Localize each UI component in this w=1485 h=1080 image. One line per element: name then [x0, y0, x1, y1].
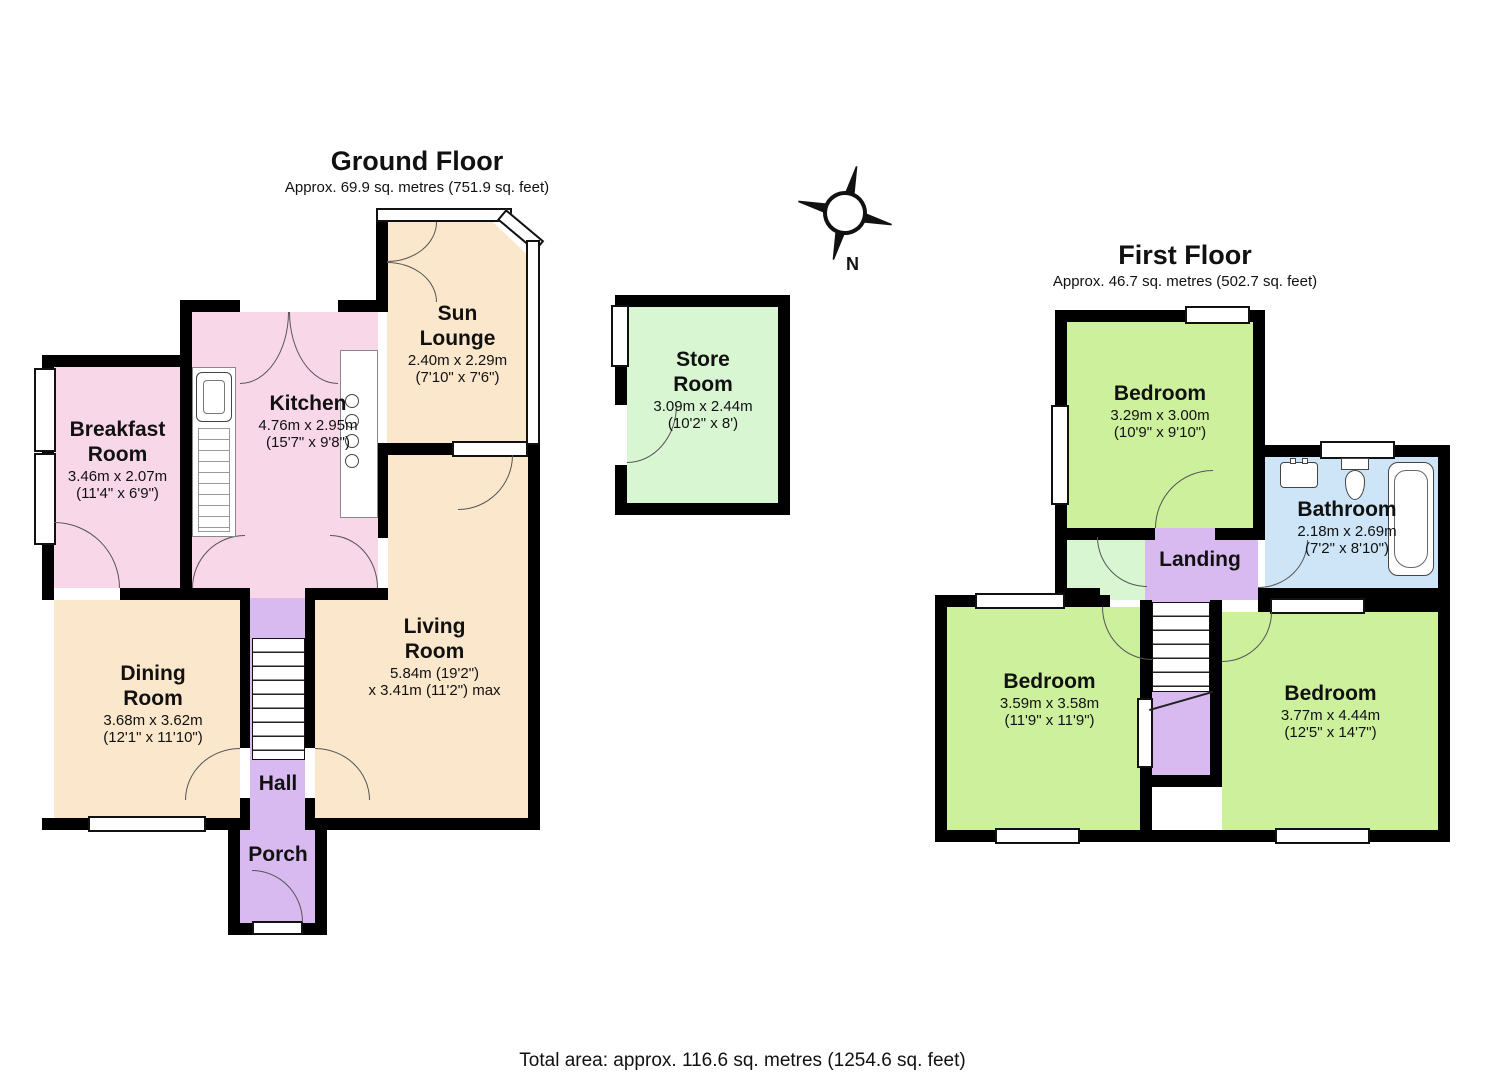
- room-name: Bedroom: [972, 670, 1127, 695]
- label-kitchen: Kitchen 4.76m x 2.95m (15'7" x 9'8"): [240, 392, 376, 452]
- room-dims: (10'2" x 8'): [638, 415, 768, 433]
- label-living: Living Room 5.84m (19'2") x 3.41m (11'2"…: [352, 615, 517, 700]
- wall: [240, 798, 250, 830]
- compass-icon: [795, 163, 895, 263]
- wall: [42, 588, 54, 600]
- room-dims: (11'4" x 6'9"): [50, 485, 185, 503]
- wall: [1265, 445, 1320, 457]
- wall: [1140, 787, 1152, 830]
- room-name: Sun Lounge: [415, 302, 500, 352]
- label-store: Store Room 3.09m x 2.44m (10'2" x 8'): [638, 348, 768, 433]
- wall: [1215, 528, 1253, 540]
- window-sun-lounge-top: [376, 208, 512, 222]
- wall: [180, 300, 240, 312]
- room-dims: 3.77m x 4.44m: [1248, 707, 1413, 725]
- label-porch: Porch: [236, 843, 320, 868]
- bathroom-sink: [1280, 462, 1318, 488]
- wall: [1438, 445, 1450, 842]
- label-bedroom-top: Bedroom 3.29m x 3.00m (10'9" x 9'10"): [1085, 382, 1235, 442]
- wall: [615, 295, 790, 307]
- compass-north-label: N: [846, 254, 859, 275]
- window: [995, 828, 1080, 844]
- floorplan-page: Ground Floor Approx. 69.9 sq. metres (75…: [0, 0, 1485, 1080]
- room-dims: 5.84m (19'2"): [352, 665, 517, 683]
- room-landing-doorway: [1155, 528, 1215, 540]
- room-dims: (10'9" x 9'10"): [1085, 424, 1235, 442]
- window-sun-lounge-right: [526, 240, 540, 445]
- wall: [42, 818, 88, 830]
- window: [88, 816, 206, 832]
- window: [1051, 405, 1069, 505]
- room-dims: 3.29m x 3.00m: [1085, 407, 1235, 425]
- stairs-first-floor: [1152, 602, 1210, 692]
- wall: [305, 598, 315, 748]
- room-dims: (7'10" x 7'6"): [395, 369, 520, 387]
- kitchen-sink-bowl: [203, 380, 225, 414]
- wall: [305, 798, 315, 830]
- stairs-ground-floor: [252, 638, 305, 760]
- wall: [228, 923, 252, 935]
- toilet-cistern: [1341, 458, 1369, 470]
- room-name: Store Room: [661, 348, 746, 398]
- wall: [615, 503, 790, 515]
- wall: [315, 818, 540, 830]
- room-dims: (15'7" x 9'8"): [240, 434, 376, 452]
- label-bedroom-right: Bedroom 3.77m x 4.44m (12'5" x 14'7"): [1248, 682, 1413, 742]
- first-floor-title: First Floor: [1035, 240, 1335, 271]
- window: [975, 593, 1065, 609]
- wall: [1055, 310, 1067, 405]
- wall: [376, 443, 452, 455]
- room-dims: (12'5" x 14'7"): [1248, 724, 1413, 742]
- label-landing: Landing: [1146, 548, 1254, 573]
- wall: [305, 588, 388, 600]
- wall: [1258, 600, 1270, 612]
- window-bedroom-right-top: [1270, 598, 1365, 614]
- room-name: Living Room: [395, 615, 475, 665]
- room-dims: 3.09m x 2.44m: [638, 398, 768, 416]
- wall: [778, 295, 790, 515]
- wall: [240, 598, 250, 748]
- label-bathroom: Bathroom 2.18m x 2.69m (7'2" x 8'10"): [1272, 498, 1422, 558]
- first-floor-subtitle: Approx. 46.7 sq. metres (502.7 sq. feet): [1035, 273, 1335, 290]
- bathroom-sink-tap: [1290, 458, 1296, 464]
- room-dims: (12'1" x 11'10"): [78, 729, 228, 747]
- wall: [378, 443, 388, 538]
- room-name: Breakfast Room: [62, 418, 174, 468]
- room-name: Porch: [236, 843, 320, 868]
- wall: [1365, 600, 1450, 612]
- hob-ring-icon: [345, 454, 359, 468]
- wall: [1210, 600, 1222, 787]
- wall: [1055, 505, 1067, 600]
- wall: [42, 355, 192, 367]
- window: [1185, 306, 1250, 324]
- label-breakfast: Breakfast Room 3.46m x 2.07m (11'4" x 6'…: [50, 418, 185, 503]
- room-dims: (7'2" x 8'10"): [1272, 540, 1422, 558]
- room-dims: 4.76m x 2.95m: [240, 417, 376, 435]
- ground-floor-title-block: Ground Floor Approx. 69.9 sq. metres (75…: [247, 146, 587, 196]
- room-name: Bathroom: [1272, 498, 1422, 523]
- window: [1275, 828, 1370, 844]
- total-area-text: Total area: approx. 116.6 sq. metres (12…: [0, 1050, 1485, 1072]
- room-name: Hall: [238, 772, 318, 797]
- kitchen-drainer: [198, 428, 230, 532]
- window: [1320, 441, 1395, 459]
- room-dims: (11'9" x 11'9"): [972, 712, 1127, 730]
- room-dims: 2.40m x 2.29m: [395, 352, 520, 370]
- ground-floor-subtitle: Approx. 69.9 sq. metres (751.9 sq. feet): [247, 179, 587, 196]
- wall: [528, 443, 540, 830]
- room-name: Landing: [1146, 548, 1254, 573]
- ground-floor-title: Ground Floor: [247, 146, 587, 177]
- label-hall: Hall: [238, 772, 318, 797]
- room-dims: 3.46m x 2.07m: [50, 468, 185, 486]
- room-dims: 2.18m x 2.69m: [1272, 523, 1422, 541]
- wall: [1253, 310, 1265, 540]
- room-dims: 3.59m x 3.58m: [972, 695, 1127, 713]
- wall: [303, 923, 327, 935]
- room-dims: x 3.41m (11'2") max: [352, 682, 517, 700]
- wall: [1055, 310, 1185, 322]
- label-sun-lounge: Sun Lounge 2.40m x 2.29m (7'10" x 7'6"): [395, 302, 520, 387]
- wall: [206, 818, 240, 830]
- room-dims: 3.68m x 3.62m: [78, 712, 228, 730]
- label-dining: Dining Room 3.68m x 3.62m (12'1" x 11'10…: [78, 662, 228, 747]
- room-name: Kitchen: [240, 392, 376, 417]
- label-bedroom-left: Bedroom 3.59m x 3.58m (11'9" x 11'9"): [972, 670, 1127, 730]
- wall: [1140, 775, 1222, 787]
- bathroom-sink-tap: [1302, 458, 1308, 464]
- window: [611, 305, 629, 367]
- room-name: Bedroom: [1248, 682, 1413, 707]
- wall: [935, 595, 947, 842]
- first-floor-title-block: First Floor Approx. 46.7 sq. metres (502…: [1035, 240, 1335, 290]
- porch-door-threshold: [252, 921, 303, 935]
- room-name: Bedroom: [1085, 382, 1235, 407]
- wall: [1065, 595, 1110, 607]
- room-name: Dining Room: [113, 662, 193, 712]
